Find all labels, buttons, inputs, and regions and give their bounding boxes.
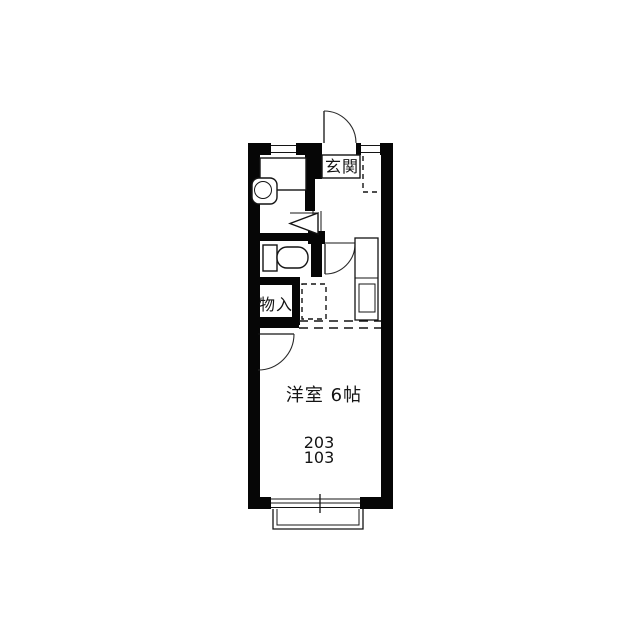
top-window-right bbox=[361, 143, 380, 155]
outer-wall-right bbox=[381, 143, 393, 509]
wall-storage-bottom bbox=[248, 317, 299, 328]
bath-folding-door bbox=[290, 213, 318, 234]
storage-label: 物入 bbox=[259, 295, 293, 314]
balcony bbox=[273, 509, 363, 529]
toilet bbox=[263, 245, 308, 271]
wall-toilet-right bbox=[311, 244, 322, 277]
main-room-window bbox=[271, 494, 360, 513]
washer-space-dashed bbox=[302, 284, 326, 319]
floor-plan-drawing: 玄関 物入 洋室 6帖 203 103 bbox=[0, 0, 640, 640]
wall-bath-bottom bbox=[248, 233, 317, 241]
top-window-left bbox=[271, 143, 296, 155]
wall-entrance-side bbox=[315, 155, 322, 179]
wall-toilet-bottom bbox=[248, 277, 300, 285]
kitchen-door bbox=[325, 243, 355, 274]
kitchen-counter bbox=[355, 238, 378, 320]
room-boundary-dashed bbox=[299, 321, 381, 328]
main-room-door bbox=[258, 334, 294, 370]
entrance-label: 玄関 bbox=[325, 157, 359, 176]
main-room-label: 洋室 6帖 bbox=[286, 385, 362, 406]
entrance-doorway-opening bbox=[322, 143, 356, 155]
unit-number-lower: 103 bbox=[304, 448, 335, 467]
shoe-cabinet-dashed bbox=[363, 156, 381, 192]
entrance-door bbox=[324, 111, 356, 143]
kitchen-sink bbox=[359, 284, 375, 312]
floor-plan-canvas: 玄関 物入 洋室 6帖 203 103 bbox=[0, 0, 640, 640]
washbasin bbox=[252, 178, 277, 204]
